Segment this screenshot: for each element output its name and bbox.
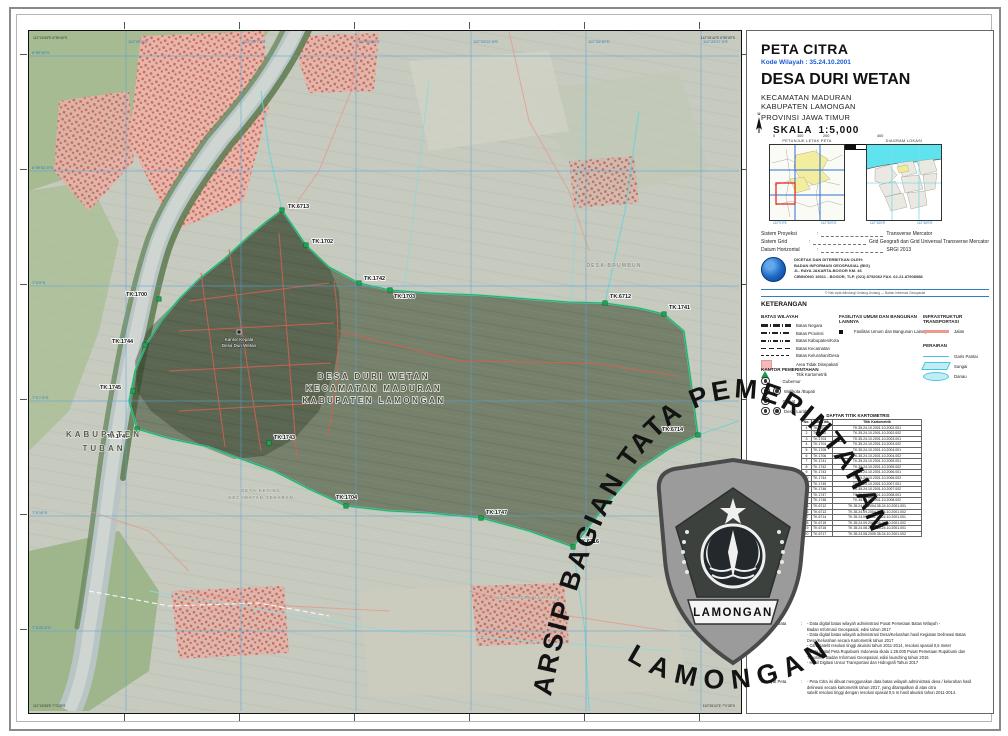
publisher-line: CIBINONG 16911 - BOGOR, TLP. (021) 87520… [794, 274, 923, 280]
legend-title: KETERANGAN [761, 301, 807, 308]
north-arrow-icon [753, 116, 765, 134]
kartometric-point-marker [388, 288, 392, 292]
lurah-office-icon [773, 407, 782, 416]
bottom-tick-marks [124, 714, 703, 721]
longitude-grid-label: 112°25'0″E [128, 39, 148, 44]
province-title: PROVINSI JAWA TIMUR [761, 113, 850, 123]
table-title: DAFTAR TITIK KARTOMETRIS [801, 413, 915, 418]
kartometric-point-label: TK.6713 [288, 204, 309, 210]
label-desa-brumbun: DESA BRUMBUN [586, 263, 641, 269]
colon: : [817, 247, 818, 253]
kartometric-point-marker [344, 504, 348, 508]
map-history-lines: - Peta Citra ini dibuat menggunakan data… [807, 679, 971, 696]
table-row: 15 TK.6712 TK.35.24.09.2004.35.24.10.200… [802, 503, 922, 509]
latitude-grid-label: 7°0'0″S [32, 280, 45, 285]
latitude-grid-label: 7°0'7.5″S [32, 395, 49, 400]
building-icon [839, 330, 843, 334]
village-office-marker [237, 330, 241, 334]
inset-right-title: DIAGRAM LOKASI [866, 139, 942, 143]
map-canvas[interactable]: 112°25'0″E112°25'7.5″E112°25'15″E112°25'… [28, 30, 742, 714]
kartometric-point-marker [280, 208, 284, 212]
coastline-swatch [923, 356, 949, 357]
kartometric-table: No. No. Titik Titik Kartometrik 1 TK.170… [801, 419, 922, 537]
kartometric-point-label: TK.1741 [669, 305, 690, 311]
inset-right-tick: 112°45'0″E [917, 221, 933, 225]
longitude-grid-label: 112°25'15″E [358, 39, 380, 44]
river-swatch [921, 362, 951, 370]
kartometric-point-marker [131, 389, 135, 393]
corner-coordinate: 112°24'55″E 6°59'40″S [33, 36, 68, 40]
regent-office-icon [773, 387, 782, 396]
projection-label: Sistem Proyeksi [761, 231, 817, 237]
map-type-title: PETA CITRA [761, 41, 848, 57]
lake-swatch [923, 372, 949, 381]
inset-right-tick: 112°15'0″E [870, 221, 886, 225]
latitude-grid-label: 7°0'15″S [32, 510, 48, 515]
longitude-grid-label: 112°25'7.5″E [243, 39, 266, 44]
projection-info: Sistem Proyeksi : Transverse Mercator Si… [761, 229, 989, 253]
scale-label: SKALA [773, 125, 812, 136]
kartometric-point-label: TK.1745 [100, 385, 121, 391]
longitude-grid-label: 112°25'22.5″E [473, 39, 498, 44]
legend-label: Batas Kecamatan [796, 346, 830, 351]
grid-system-label: Sistem Grid [761, 239, 809, 245]
inset-left-tick: 112°30'0″E [821, 221, 837, 225]
kartometric-point-marker [157, 297, 161, 301]
colon: : [809, 239, 810, 245]
kartometric-point-label: TK.1744 [112, 339, 134, 345]
regency-title: KABUPATEN LAMONGAN [761, 102, 856, 112]
corner-coordinate: 112°24'55″E 7°0'28″S [33, 704, 66, 708]
table-row: 19 TK.6716 TK.35.24.08.2005.35.24.10.200… [802, 526, 922, 532]
corner-coordinate: 112°25'42″E 6°59'40″S [701, 36, 736, 40]
label-kabupaten-tuban: TUBAN [83, 444, 126, 453]
colon: : [817, 231, 818, 237]
legend-label: Danau [954, 374, 967, 379]
legend-label: Garis Pantai [954, 354, 978, 359]
legend-label: Batas Kabupaten/Kota [796, 338, 839, 343]
longitude-grid-label: 112°25'30″E [588, 39, 610, 44]
source-data-lines: - Data digital batas wilayah administras… [807, 621, 966, 666]
legend-label: Fasilitas Umum dan Bangunan Lainnya [854, 329, 929, 334]
governor-office-icon [761, 377, 770, 386]
legend-label: Sungai [954, 364, 967, 369]
kartometric-point-marker [357, 281, 361, 285]
kartometric-point-marker [267, 441, 271, 445]
label-kecamatan-maduran: KECAMATAN MADURAN [306, 384, 442, 393]
village-office-icon [761, 407, 770, 416]
legend-label: Gubernur [783, 379, 801, 384]
inset-left-tick: 112°0'0″E [773, 221, 787, 225]
kartometric-point-marker [662, 312, 666, 316]
map-history-label: Riwayat Peta [761, 679, 801, 696]
datum-value: SRGI 2013 [886, 247, 911, 253]
big-logo [761, 257, 786, 282]
left-tick-marks [20, 54, 27, 631]
table-row: 20 TK.6717 TK.35.24.08.2005.35.24.10.200… [802, 531, 922, 537]
kartometric-point-marker [571, 545, 575, 549]
kartometric-point-marker [696, 433, 700, 437]
kartometric-point-label: TK.6712 [610, 294, 631, 300]
kartometric-point-label: TK.1743 [274, 435, 295, 441]
legend-batas-title: BATAS WILAYAH [761, 314, 798, 319]
label-kecamatan-sekaran: KECAMATAN SEKARAN [228, 495, 293, 500]
kartometric-point-label: TK.1702 [312, 239, 333, 245]
satellite-map: 112°25'0″E112°25'7.5″E112°25'15″E112°25'… [29, 31, 739, 711]
map-history-note: Riwayat Peta : - Peta Citra ini dibuat m… [761, 679, 991, 696]
label-desa-duri-wetan: DESA DURI WETAN [318, 372, 430, 381]
legend-label: Batas Kelurahan/Desa [796, 353, 839, 358]
label-desa-keting: DESA KETING [241, 488, 280, 493]
label-village-office: Kantor Kepala [225, 337, 254, 342]
grid-system-value: Grid Geografi dan Grid Universal Transve… [869, 239, 989, 245]
latitude-grid-label: 6°59'52.5″S [32, 165, 53, 170]
table-row: 18 TK.6715 TK.35.24.09.2001.35.24.10.200… [802, 520, 922, 526]
label-kabupaten-lamongan: KABUPATEN LAMONGAN [302, 396, 445, 405]
scalebar-tick: 200 [823, 134, 829, 138]
kartometric-point-marker [143, 343, 147, 347]
corner-coordinate: 112°25'42″E 7°0'28″S [703, 704, 736, 708]
kode-wilayah: Kode Wilayah : 35.24.10.2001 [761, 59, 851, 66]
road-swatch [923, 330, 949, 333]
table-row: 16 TK.6713 TK.35.24.09.2004.35.24.10.200… [802, 509, 922, 515]
kartometric-point-label: TK.1703 [394, 294, 415, 300]
projection-value: Transverse Mercator [886, 231, 932, 237]
kartometric-point-marker [603, 301, 607, 305]
scalebar-tick: 100 [797, 134, 803, 138]
kartometric-point-label: TK.6716 [578, 539, 599, 545]
legend-label: Camat [783, 399, 796, 404]
scalebar-tick: 400 [877, 134, 883, 138]
legend-kantor-title: KANTOR PEMERINTAHAN [761, 367, 819, 372]
label-kecamatan-sekaran-south: KECAMATAN SEKARAN [496, 595, 561, 600]
legend-label: Batas Negara [796, 323, 822, 328]
legend-label: Batas Provinsi [796, 331, 823, 336]
legend-label: Walikota /Bupati [784, 389, 815, 394]
kartometric-point-marker [479, 516, 483, 520]
kartometric-point-label: TK.1747 [486, 510, 507, 516]
kartometric-point-label: TK.1742 [364, 276, 385, 282]
legend-perairan-title: PERAIRAN [923, 343, 947, 348]
scalebar-tick: 0 [773, 134, 775, 138]
mayor-office-icon [761, 387, 770, 396]
legend-label: Jalan [954, 329, 964, 334]
inset-left-title: PETUNJUK LETAK PETA [769, 139, 845, 143]
publisher-block: DICETAK DAN DITERBITKAN OLEH: BADAN INFO… [761, 257, 923, 282]
inset-map-diagram-lokasi [866, 144, 942, 221]
top-tick-marks [124, 22, 703, 29]
inset-map-letak-peta [769, 144, 845, 221]
kartometric-point-marker [304, 243, 308, 247]
village-title: DESA DURI WETAN [761, 71, 910, 89]
datum-label: Datum Horizontal [761, 247, 817, 253]
map-marginalia-panel: PETA CITRA Kode Wilayah : 35.24.10.2001 … [746, 30, 994, 714]
table-row: 17 TK.6714 TK.35.24.09.2001.35.24.10.200… [802, 515, 922, 521]
kartometric-point-label: TK.1704 [336, 495, 358, 501]
source-data-label: Sumber Data [761, 621, 801, 666]
latitude-grid-label: 7°0'22.5″S [32, 625, 51, 630]
source-data-note: Sumber Data : - Data digital batas wilay… [761, 621, 991, 666]
latitude-grid-label: 6°59'45″S [32, 50, 50, 55]
label-kabupaten-tuban: KABUPATEN [66, 430, 142, 439]
copyright-strip: © Hak cipta dilindungi Undang-Undang — B… [761, 289, 989, 297]
kartometric-point-label: TK.6714 [662, 427, 684, 433]
label-village-office: Desa Duri Wetan [222, 343, 257, 348]
subdistrict-office-icon [761, 397, 770, 406]
legend-fasilitas-title: FASILITAS UMUM DAN BANGUNAN LAINNYA [839, 314, 917, 324]
kartometric-point-label: TK.1700 [126, 292, 147, 298]
legend-infra-title: INFRASTRUKTUR TRANSPORTASI [923, 314, 989, 324]
